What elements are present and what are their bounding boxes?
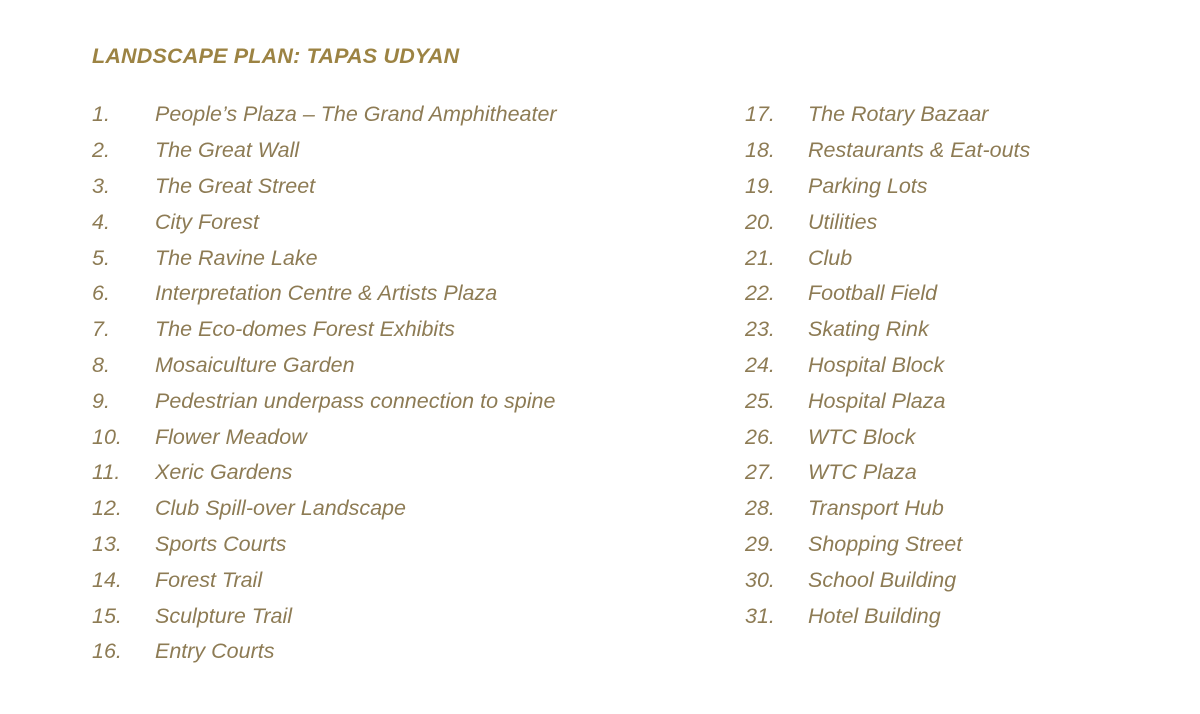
item-number: 17. (745, 102, 808, 127)
item-label: The Rotary Bazaar (808, 102, 988, 127)
item-number: 31. (745, 604, 808, 629)
list-item: 5.The Ravine Lake (92, 240, 745, 276)
list-item: 11.Xeric Gardens (92, 455, 745, 491)
item-number: 13. (92, 532, 155, 557)
list-item: 14.Forest Trail (92, 562, 745, 598)
item-label: WTC Block (808, 425, 916, 450)
item-number: 5. (92, 246, 155, 271)
item-label: Skating Rink (808, 317, 929, 342)
item-label: Hotel Building (808, 604, 941, 629)
item-label: School Building (808, 568, 956, 593)
item-label: Xeric Gardens (155, 460, 292, 485)
list-item: 6.Interpretation Centre & Artists Plaza (92, 276, 745, 312)
list-item: 25.Hospital Plaza (745, 383, 1185, 419)
item-label: City Forest (155, 210, 259, 235)
item-label: WTC Plaza (808, 460, 917, 485)
item-label: People’s Plaza – The Grand Amphitheater (155, 102, 557, 127)
item-label: Restaurants & Eat-outs (808, 138, 1030, 163)
list-item: 30.School Building (745, 562, 1185, 598)
item-number: 19. (745, 174, 808, 199)
list-item: 29.Shopping Street (745, 527, 1185, 563)
legend-column-right: 17.The Rotary Bazaar 18.Restaurants & Ea… (745, 97, 1185, 634)
item-label: Entry Courts (155, 639, 274, 664)
list-item: 1.People’s Plaza – The Grand Amphitheate… (92, 97, 745, 133)
item-label: Forest Trail (155, 568, 262, 593)
item-number: 22. (745, 281, 808, 306)
item-label: The Great Street (155, 174, 315, 199)
list-item: 13.Sports Courts (92, 527, 745, 563)
list-item: 15.Sculpture Trail (92, 598, 745, 634)
item-number: 10. (92, 425, 155, 450)
item-number: 3. (92, 174, 155, 199)
item-number: 8. (92, 353, 155, 378)
list-item: 12.Club Spill-over Landscape (92, 491, 745, 527)
item-number: 15. (92, 604, 155, 629)
item-label: Football Field (808, 281, 937, 306)
item-number: 1. (92, 102, 155, 127)
item-label: Flower Meadow (155, 425, 307, 450)
item-label: The Ravine Lake (155, 246, 318, 271)
item-label: Club Spill-over Landscape (155, 496, 406, 521)
item-number: 23. (745, 317, 808, 342)
item-label: Hospital Block (808, 353, 944, 378)
item-label: Pedestrian underpass connection to spine (155, 389, 555, 414)
list-item: 20.Utilities (745, 204, 1185, 240)
item-label: Shopping Street (808, 532, 962, 557)
item-label: Parking Lots (808, 174, 928, 199)
list-item: 21.Club (745, 240, 1185, 276)
item-label: Interpretation Centre & Artists Plaza (155, 281, 497, 306)
list-item: 9.Pedestrian underpass connection to spi… (92, 383, 745, 419)
list-item: 19.Parking Lots (745, 169, 1185, 205)
item-number: 14. (92, 568, 155, 593)
list-item: 18.Restaurants & Eat-outs (745, 133, 1185, 169)
item-label: Transport Hub (808, 496, 944, 521)
list-item: 27.WTC Plaza (745, 455, 1185, 491)
item-number: 30. (745, 568, 808, 593)
item-number: 12. (92, 496, 155, 521)
list-item: 24.Hospital Block (745, 348, 1185, 384)
item-label: Mosaiculture Garden (155, 353, 355, 378)
item-number: 28. (745, 496, 808, 521)
list-item: 4.City Forest (92, 204, 745, 240)
item-number: 29. (745, 532, 808, 557)
list-item: 22.Football Field (745, 276, 1185, 312)
item-number: 25. (745, 389, 808, 414)
list-item: 3.The Great Street (92, 169, 745, 205)
item-number: 7. (92, 317, 155, 342)
item-number: 27. (745, 460, 808, 485)
list-item: 31.Hotel Building (745, 598, 1185, 634)
list-item: 26.WTC Block (745, 419, 1185, 455)
list-item: 10.Flower Meadow (92, 419, 745, 455)
list-item: 2.The Great Wall (92, 133, 745, 169)
item-label: Club (808, 246, 852, 271)
list-item: 28.Transport Hub (745, 491, 1185, 527)
list-item: 7.The Eco-domes Forest Exhibits (92, 312, 745, 348)
list-item: 16.Entry Courts (92, 634, 745, 670)
landscape-plan-legend-page: LANDSCAPE PLAN: TAPAS UDYAN 1.People’s P… (0, 0, 1200, 714)
item-number: 6. (92, 281, 155, 306)
item-number: 18. (745, 138, 808, 163)
item-number: 24. (745, 353, 808, 378)
item-number: 4. (92, 210, 155, 235)
item-number: 16. (92, 639, 155, 664)
item-label: Sculpture Trail (155, 604, 292, 629)
item-number: 2. (92, 138, 155, 163)
item-label: Sports Courts (155, 532, 286, 557)
item-label: Hospital Plaza (808, 389, 945, 414)
list-item: 17.The Rotary Bazaar (745, 97, 1185, 133)
list-item: 8.Mosaiculture Garden (92, 348, 745, 384)
item-label: The Great Wall (155, 138, 299, 163)
item-number: 21. (745, 246, 808, 271)
item-number: 26. (745, 425, 808, 450)
item-number: 9. (92, 389, 155, 414)
page-title: LANDSCAPE PLAN: TAPAS UDYAN (92, 44, 1200, 69)
item-number: 11. (92, 460, 155, 485)
legend-columns: 1.People’s Plaza – The Grand Amphitheate… (92, 97, 1200, 670)
list-item: 23.Skating Rink (745, 312, 1185, 348)
legend-column-left: 1.People’s Plaza – The Grand Amphitheate… (92, 97, 745, 670)
item-label: The Eco-domes Forest Exhibits (155, 317, 455, 342)
item-label: Utilities (808, 210, 877, 235)
item-number: 20. (745, 210, 808, 235)
